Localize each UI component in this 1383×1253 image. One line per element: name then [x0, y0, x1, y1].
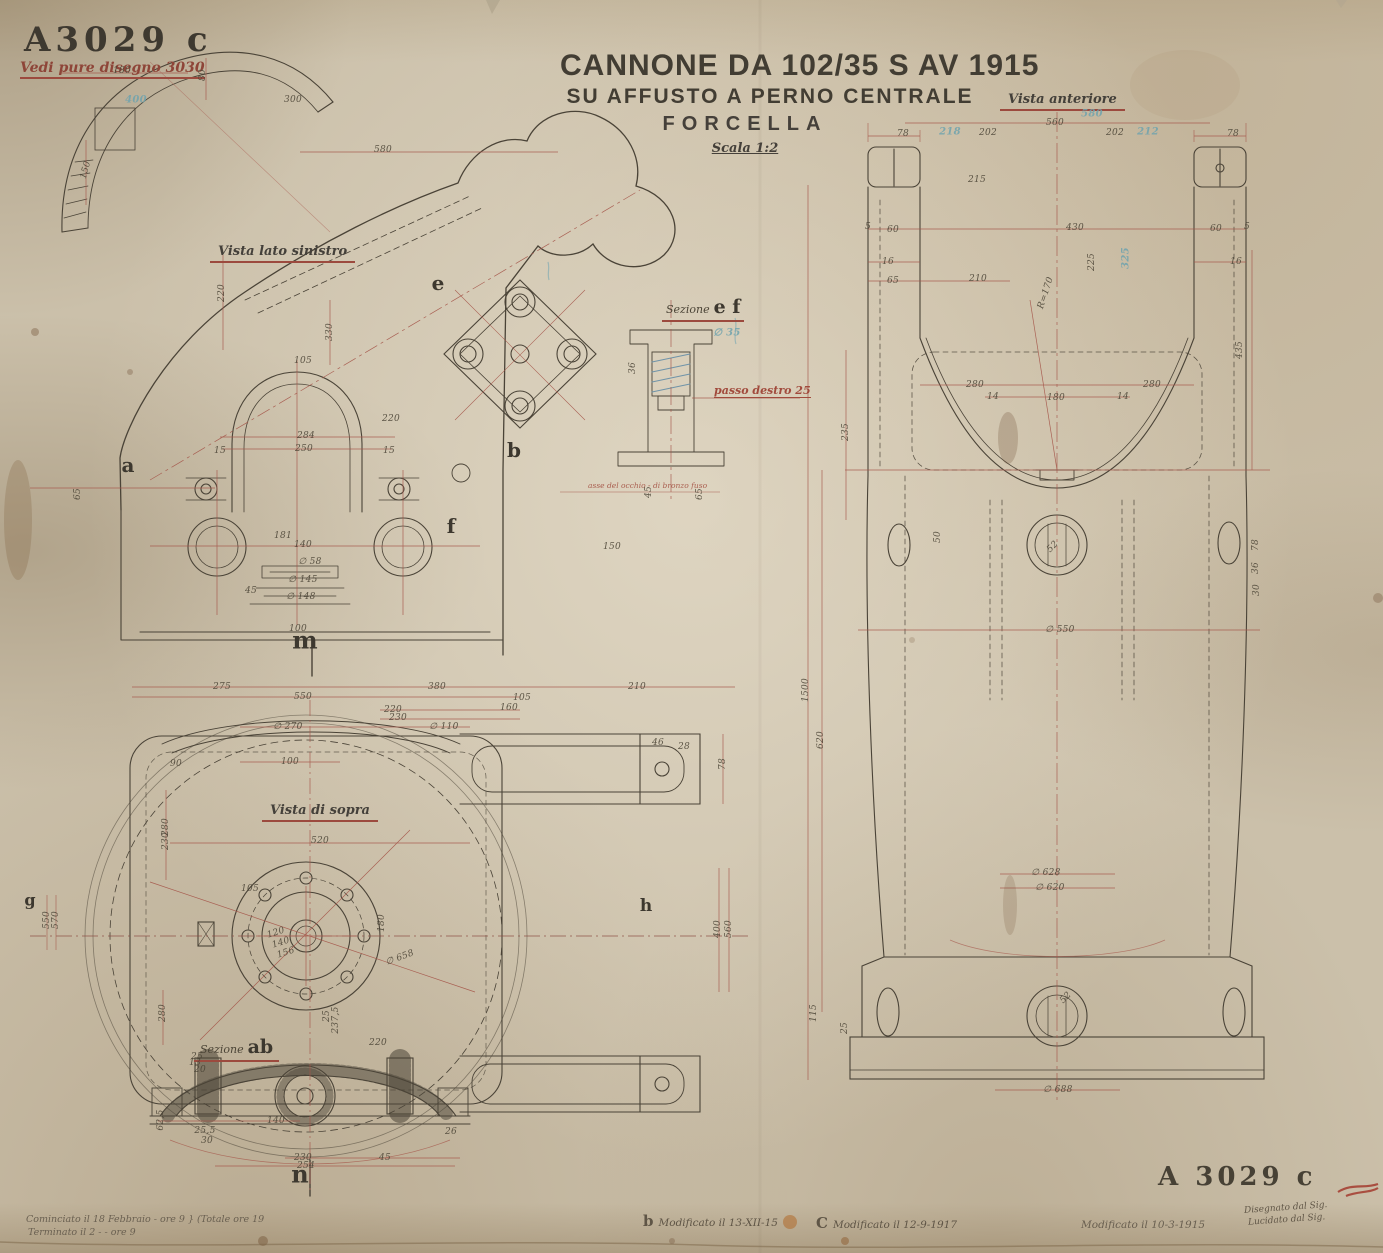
section-marker-e: e — [432, 271, 445, 295]
modification-note-b: bModificato il 13-XII-15 — [643, 1211, 778, 1230]
dimension-label: ∅ 620 — [1035, 883, 1064, 893]
dimension-label: 50 — [933, 531, 943, 543]
dimension-label: 220 — [382, 414, 400, 424]
dimension-label: 400 — [713, 920, 723, 938]
dimension-label: 250 — [295, 444, 313, 454]
dimension-label: 215 — [968, 175, 986, 185]
dimension-label: 220 — [217, 284, 227, 302]
drawing-number-stamp: A3029 c — [24, 20, 213, 60]
dimension-label: 150 — [603, 542, 621, 552]
dimension-label: 140 — [294, 540, 312, 550]
dimension-label: 430 — [1066, 223, 1084, 233]
section-marker-m: m — [292, 626, 317, 655]
dimension-label: 20 — [194, 1065, 206, 1075]
section-marker-g: g — [24, 891, 35, 910]
modification-letter-b: b — [643, 1212, 654, 1230]
section-ef-letters: e f — [714, 296, 741, 318]
dimension-label: 202 — [1106, 128, 1124, 138]
dimension-label: 16 — [882, 257, 894, 267]
dimension-label: 46 — [652, 738, 664, 748]
dimension-label: 210 — [628, 682, 646, 692]
drawing-linework — [0, 0, 1383, 1253]
section-ef-label: Sezionee f — [662, 296, 744, 322]
dimension-label: 237,5 — [331, 1006, 341, 1033]
dimension-label: 30 — [1252, 584, 1262, 596]
section-marker-b: b — [507, 438, 521, 462]
top-edge-tear — [486, 0, 500, 14]
dimension-label: 65 — [73, 488, 83, 500]
top-view-drawing — [85, 640, 700, 1196]
dimension-label: ∅ 628 — [1031, 868, 1060, 878]
dimension-label: 140 — [267, 1116, 285, 1126]
modification-letter-c: C — [816, 1214, 828, 1232]
dimension-label: 30 — [201, 1136, 213, 1146]
dimension-label: 560 — [724, 920, 734, 938]
dimension-label: 550 — [294, 692, 312, 702]
modification-text-b: Modificato il 13-XII-15 — [659, 1217, 778, 1229]
section-ab-letters: ab — [248, 1036, 274, 1058]
dimension-label: 5 — [865, 222, 871, 232]
dimension-label: 15 — [383, 446, 395, 456]
dimension-label: 400 — [125, 95, 147, 106]
dimension-label: 1500 — [801, 678, 811, 702]
dimension-label: 25 — [840, 1022, 850, 1034]
dimension-label: 80 — [198, 69, 208, 81]
dimension-label: 520 — [311, 836, 329, 846]
dimension-label: ∅ 550 — [1045, 625, 1074, 635]
started-note: Cominciato il 18 Febbraio - ore 9 } (Tot… — [26, 1214, 264, 1225]
dimension-label: 105 — [294, 356, 312, 366]
dimension-label: ∅ 270 — [273, 722, 302, 732]
title-line-2: SU AFFUSTO A PERNO CENTRALE — [560, 85, 980, 109]
dimension-label: ∅ 110 — [429, 722, 458, 732]
dimension-label: 180 — [113, 66, 131, 76]
dimension-label: 580 — [1081, 109, 1103, 120]
dimension-label: 60 — [887, 225, 899, 235]
dimension-label: 212 — [1137, 127, 1159, 138]
dimension-label: 78 — [1251, 539, 1261, 551]
dimension-label: 620 — [816, 731, 826, 749]
dimension-label: ∅ 688 — [1043, 1085, 1072, 1095]
dimension-label: 90 — [170, 759, 182, 769]
dimension-label: 36 — [628, 362, 638, 374]
dimension-label: 220 — [369, 1038, 387, 1048]
dimension-label: 78 — [897, 129, 909, 139]
title-line-3: FORCELLA — [560, 113, 930, 136]
front-view-dimension-lines — [808, 112, 1270, 1100]
drawing-number-stamp-bottom: A 3029 c — [1158, 1162, 1316, 1192]
section-ef-prefix: Sezione — [666, 303, 710, 316]
dimension-label: 230 — [389, 713, 407, 723]
dimension-label: 280 — [966, 380, 984, 390]
section-marker-h: h — [640, 896, 652, 916]
dimension-label: 180 — [1047, 393, 1065, 403]
dimension-label: 300 — [284, 95, 302, 105]
section-marker-n: n — [291, 1160, 308, 1189]
dimension-label: 160 — [500, 703, 518, 713]
dimension-label: 230 — [161, 832, 171, 850]
dimension-label: 105 — [513, 693, 531, 703]
dimension-label: 36 — [1251, 562, 1261, 574]
dimension-label: 235 — [841, 423, 851, 441]
modification-note-c: CModificato il 12-9-1917 — [816, 1213, 957, 1232]
dimension-label: 65 — [887, 276, 899, 286]
section-ab-prefix: Sezione — [200, 1043, 244, 1056]
dimension-label: 15 — [214, 446, 226, 456]
dimension-label: 14 — [1117, 392, 1129, 402]
dimension-label: 14 — [987, 392, 999, 402]
left-view-label: Vista lato sinistro — [210, 244, 355, 263]
dimension-label: 202 — [979, 128, 997, 138]
dimension-label: 78 — [718, 758, 728, 770]
top-view-label: Vista di sopra — [262, 803, 378, 822]
red-scribble — [1338, 1184, 1378, 1196]
dimension-label: ∅ 145 — [288, 575, 317, 585]
dimension-label: 60 — [1210, 224, 1222, 234]
dimension-label: 26 — [445, 1127, 457, 1137]
dimension-label: 105 — [241, 884, 259, 894]
dimension-label: 210 — [969, 274, 987, 284]
dimension-label: 284 — [297, 431, 315, 441]
dimension-label: 62,5 — [156, 1109, 166, 1130]
finished-note: Terminato il 2 - - ore 9 — [28, 1227, 136, 1238]
dimension-label: 180 — [377, 914, 387, 932]
dimension-label: 275 — [213, 682, 231, 692]
dimension-label: 45 — [379, 1153, 391, 1163]
dimension-label: 218 — [939, 127, 961, 138]
dimension-label: 570 — [51, 911, 61, 929]
dimension-label: ∅ 35 — [713, 328, 740, 339]
dimension-label: 78 — [1227, 129, 1239, 139]
dimension-label: 560 — [1046, 118, 1064, 128]
dimension-label: 435 — [1235, 341, 1245, 359]
scale-label: Scala 1:2 — [560, 141, 930, 156]
dimension-label: 380 — [428, 682, 446, 692]
section-marker-a: a — [122, 453, 135, 477]
modification-text-c: Modificato il 12-9-1917 — [833, 1219, 957, 1231]
section-ab-label: Sezioneab — [194, 1036, 279, 1062]
dimension-label: ∅ 58 — [298, 557, 321, 567]
dimension-label: 100 — [281, 757, 299, 767]
modification-note-2: Modificato il 10-3-1915 — [1081, 1219, 1205, 1231]
section-marker-f: f — [447, 514, 456, 538]
thread-note: passo destro 25 — [714, 384, 811, 398]
dimension-label: 325 — [1121, 247, 1132, 269]
dimension-label: 45 — [245, 586, 257, 596]
dimension-label: 280 — [158, 1004, 168, 1022]
dimension-label: 225 — [1087, 253, 1097, 271]
dimension-label: 280 — [1143, 380, 1161, 390]
title-line-1: CANNONE DA 102/35 S AV 1915 — [560, 49, 1030, 83]
dimension-label: 25 — [322, 1010, 332, 1022]
dimension-label: 181 — [274, 531, 292, 541]
dimension-label: 115 — [809, 1004, 819, 1022]
dimension-label: 5 — [1244, 222, 1250, 232]
dimension-label: 65 — [695, 488, 705, 500]
dimension-label: 28 — [678, 742, 690, 752]
dimension-label: 25,5 — [194, 1126, 215, 1136]
blueprint-sheet: A3029 c Vedi pure disegno 3030 CANNONE D… — [0, 0, 1383, 1253]
dimension-label: 45 — [644, 486, 654, 498]
dimension-label: 330 — [325, 323, 335, 341]
dimension-label: 16 — [1230, 257, 1242, 267]
front-view-label: Vista anteriore — [1000, 92, 1125, 111]
dimension-label: 580 — [374, 145, 392, 155]
dimension-label: ∅ 148 — [286, 592, 315, 602]
